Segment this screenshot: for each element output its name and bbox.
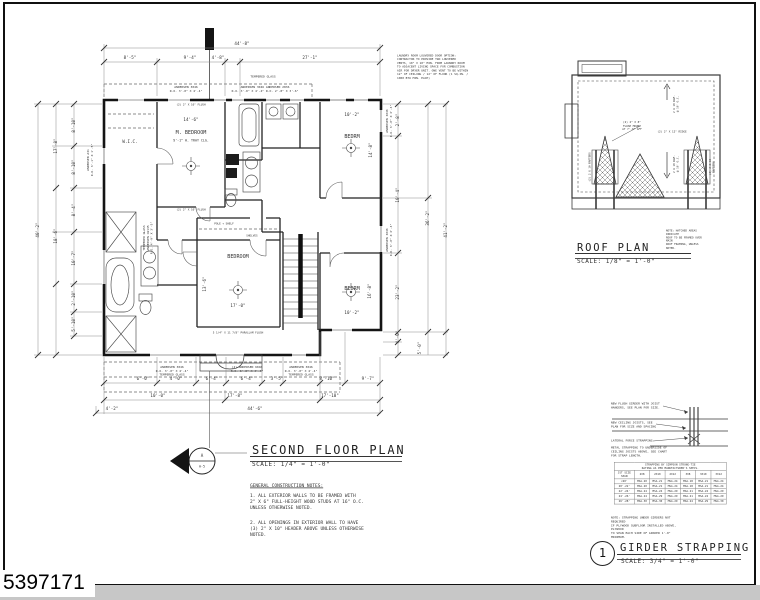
window-label: ANDERSEN 3046 R.O. 3'-0" X 4'-4" TEMPERE… — [156, 365, 189, 376]
construction-note-2: 2. ALL OPENINGS IN EXTERIOR WALL TO HAVE… — [250, 520, 364, 538]
col-header: 3X12 — [711, 470, 726, 478]
vanity — [243, 152, 260, 192]
closet-label: POLE + SHELF — [214, 222, 234, 225]
dim-bottom: 6'-4" — [206, 376, 219, 381]
ceiling-fan — [229, 281, 247, 299]
roof-plan-linework — [565, 61, 720, 209]
window-label-tempered: TEMPERED GLASS — [250, 75, 275, 79]
strapping-table: STRAPPING BY SIMPSON STRONG-TIE RATING A… — [614, 462, 727, 504]
room-label-bedrm-tr: BEDRM — [344, 134, 359, 140]
metal-strap-callout: METAL STRAPPING TO UNDERSIDE OF CEILING … — [611, 446, 667, 458]
dim-right: 10'-4" — [395, 187, 400, 202]
dormer-rafter-label: (2) 2 X 10 RAFTERS — [588, 152, 591, 181]
dim-bottom: 10'-0" — [150, 393, 165, 398]
dim-bottom: 17'-10" — [321, 393, 339, 398]
section-marker — [170, 371, 247, 474]
col-header: 3X8 — [680, 470, 695, 478]
dim-left: 10'-7" — [71, 250, 76, 265]
cell: MSA-24 — [680, 499, 695, 504]
dim-bottom: 17'-8" — [227, 393, 242, 398]
room-dim: 17'-0" — [230, 303, 245, 308]
window-label: ANDERSEN 3046 R.O. 3'-0" X 4'-4" TEMPERE… — [285, 365, 318, 376]
window-label: ANDERSEN 3046 ANDERSEN 2836 R.O. 3'-0" X… — [232, 85, 299, 93]
rafter-arrow-up — [664, 84, 670, 100]
cell: MSA-29 — [696, 499, 711, 504]
col-header: JST SIZE SPAN — [614, 470, 634, 478]
joists-callout: NEW CEILING JOISTS, SEE PLAN FOR SIZE AN… — [611, 421, 656, 429]
girder — [690, 407, 698, 446]
detail-number-bubble: 1 — [590, 541, 615, 566]
roof-rafter-label: 2 X 10 RAF. @ 16" O.C. — [673, 155, 680, 173]
window-label: ANDERSEN 3046 R.O. 3'-0" X 4'-4" — [170, 85, 203, 93]
roof-plan-scale: SCALE: 1/8" = 1'-0" — [577, 258, 655, 265]
floor-plan-title: SECOND FLOOR PLAN — [252, 443, 405, 457]
window-label: ANDERSEN 3046 R.O. 3'-0" X 4'-4" — [385, 224, 393, 257]
col-header: 2X12 — [665, 470, 680, 478]
col-header: 2X8 — [634, 470, 649, 478]
dim-left: 17'-8" — [53, 138, 58, 153]
beam-label: 5 1/4" X 11 7/8" PARALLAM FLUSH — [213, 331, 263, 334]
main-gable — [616, 154, 664, 197]
header-label: (2) 2" X 10" FLUSH — [176, 208, 205, 211]
shelves-label: SHELVES — [246, 234, 257, 237]
section-cut-marker-top — [205, 28, 214, 50]
cell: MSA-30 — [711, 499, 726, 504]
dormer-rafter-label: (2) 2 X 10 RAFTERS — [709, 156, 716, 178]
room-label-bedroom: BEDROOM — [227, 254, 249, 260]
floor-plan-scale: SCALE: 1/4" = 1'-0" — [252, 461, 330, 468]
header-label: (2) 2" X 10" FLUSH — [176, 103, 205, 106]
dim-top: 27'-1" — [302, 55, 317, 60]
window-label: ANDERSEN A31 R.O. 3'-1" X 1'-5" — [86, 144, 94, 177]
roof-flush-mount-label: (2) 2" X 8" FLUSH MOUNT AT 7'-0" AFF — [622, 121, 642, 131]
table-row: 26'-28'MSA-30MSA-30MSA-29MSA-24MSA-29MSA… — [614, 499, 726, 504]
dim-left-overall: 40'-2" — [35, 222, 40, 237]
window-label: (2) ANDERSEN 6046 R.O. 6'-0" X 4'-4" — [231, 365, 264, 373]
dim-bottom: 4'-2" — [106, 406, 119, 411]
room-dim: 14'-8" — [368, 142, 373, 157]
dryer — [283, 104, 298, 119]
ceiling-fans — [182, 139, 360, 301]
dim-left: 18'-6" — [53, 228, 58, 243]
window-label: TEMPERED GLASS ANDERSEN CW135 R.O. 4'-9"… — [142, 222, 153, 255]
room-dim: 10'-2" — [344, 310, 359, 315]
dim-bottom: 4'-0" — [170, 376, 183, 381]
dim-left: 8'-10" — [71, 159, 76, 174]
dim-top: 9'-4" — [184, 55, 197, 60]
roof-rafter-label: 2 X 10 RAF. @ 16" O.C. — [673, 95, 680, 113]
dim-right: 36'-2" — [425, 210, 430, 225]
room-dim: 10'-2" — [344, 112, 359, 117]
chimney — [578, 61, 626, 76]
girder-detail-scale: SCALE: 3/4" = 1'-0" — [621, 558, 699, 565]
girder-note: NOTE: STRAPPING UNDER GIRDERS NOT REQUIR… — [611, 516, 686, 539]
rafter-arrow-down — [664, 152, 670, 178]
dim-bottom-overall: 44'-6" — [247, 406, 262, 411]
dim-top: 4'-8" — [212, 55, 225, 60]
dim-bottom: 6'-4" — [241, 376, 254, 381]
room-dim: 14'-6" — [183, 117, 198, 122]
construction-note-1: 1. ALL EXTERIOR WALLS TO BE FRAMED WITH … — [250, 493, 364, 511]
girder-callout: NEW FLUSH GIRDER WITH JOIST HANGERS, SEE… — [611, 402, 660, 410]
bathtub — [106, 258, 134, 312]
mls-number: 5397171 — [0, 570, 95, 597]
room-label-bedrm-br: BEDRM — [344, 286, 359, 292]
dim-left: 2'-10" — [71, 290, 76, 305]
section-marker-sheet: A-5 — [199, 465, 205, 469]
cabinet — [226, 168, 237, 178]
ceiling-fan — [182, 157, 200, 175]
washer — [266, 104, 281, 119]
dim-bottom: 9'-7" — [362, 376, 375, 381]
dim-bottom: 3'-5" — [271, 376, 284, 381]
dim-top-overall: 44'-8" — [234, 41, 249, 46]
cell: MSA-29 — [665, 499, 680, 504]
dim-right: 23'-2" — [395, 284, 400, 299]
dim-left: 5'-10" — [71, 316, 76, 331]
window-label: ANDERSEN 3046 R.O. 3'-0" X 4'-4" — [385, 105, 393, 138]
blueprint-sheet: M. BEDROOM 9'-1" H. TRAY CLG. W.I.C. BED… — [0, 0, 760, 600]
dim-left: 8'-10" — [71, 117, 76, 132]
room-label-master: M. BEDROOM — [176, 130, 207, 136]
room-label-wic: W.I.C. — [122, 139, 137, 144]
col-header: 2X10 — [650, 470, 665, 478]
room-dim: 13'-6" — [202, 276, 207, 291]
laundry-note: LAUNDRY ROOM LOUVERED DOOR OPTION: CONTR… — [397, 54, 468, 80]
strapping-table-caption: STRAPPING BY SIMPSON STRONG-TIE RATING A… — [614, 462, 726, 470]
cell: MSA-30 — [650, 499, 665, 504]
dim-bottom: 8'-10" — [319, 376, 334, 381]
dim-top: 8'-5" — [124, 55, 137, 60]
dormer-left — [594, 136, 616, 184]
strap-callout: LATERAL FORCE STRAPPING — [611, 439, 653, 443]
col-header: 3X10 — [696, 470, 711, 478]
section-marker-letter: A — [201, 453, 204, 458]
dashed-lines — [104, 84, 340, 392]
dim-left: 8'-4" — [71, 204, 76, 217]
construction-notes-heading: GENERAL CONSTRUCTION NOTES: — [250, 483, 323, 489]
ceiling-fan — [342, 139, 360, 157]
dim-right: 2'-8" — [395, 114, 400, 127]
cell: 26'-28' — [614, 499, 634, 504]
toilet — [139, 294, 152, 301]
roof-ridge-label: (2) 2" X 12" RIDGE — [657, 130, 686, 133]
stairs — [283, 234, 318, 323]
dormer-right — [686, 136, 708, 184]
room-label-master-ceiling: 9'-1" H. TRAY CLG. — [173, 139, 209, 143]
toilet — [225, 189, 237, 195]
girder-detail-title: GIRDER STRAPPING — [620, 542, 750, 554]
roof-plan-note: NOTE: HATCHED AREAS INDICATE ROOF TO BE … — [666, 229, 708, 250]
dim-right-overall: 41'-2" — [443, 222, 448, 237]
drawing-linework — [0, 0, 760, 600]
dim-bottom: 6'-0" — [137, 376, 150, 381]
room-dim: 16'-8" — [367, 283, 372, 298]
dim-right: 5'-0" — [417, 342, 422, 355]
cabinet — [226, 154, 239, 165]
dim-right: 4'-0" — [395, 331, 400, 344]
cell: MSA-30 — [634, 499, 649, 504]
